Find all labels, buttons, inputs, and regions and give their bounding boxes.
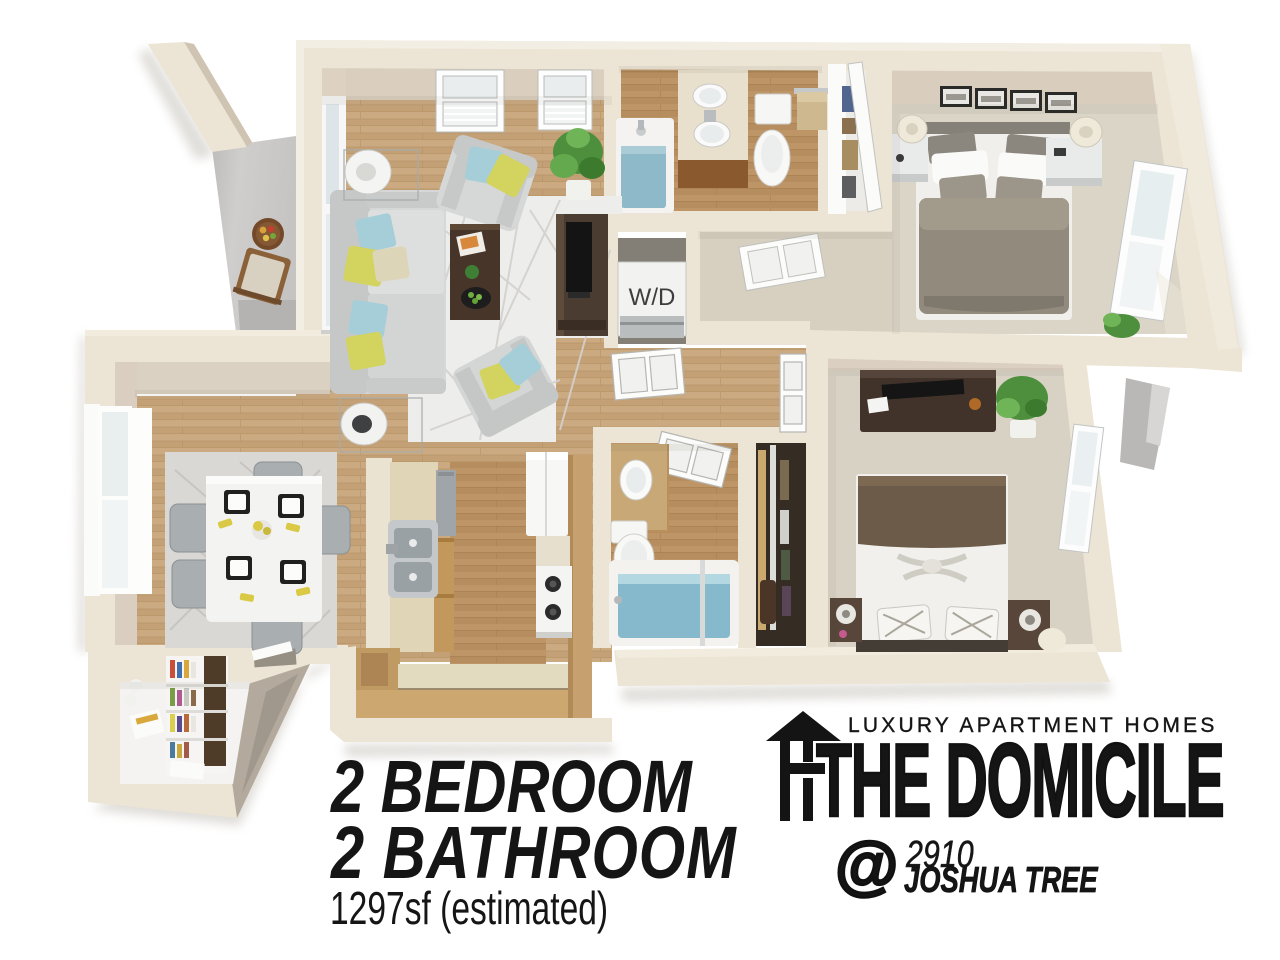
svg-text:W/D: W/D [629, 284, 676, 311]
